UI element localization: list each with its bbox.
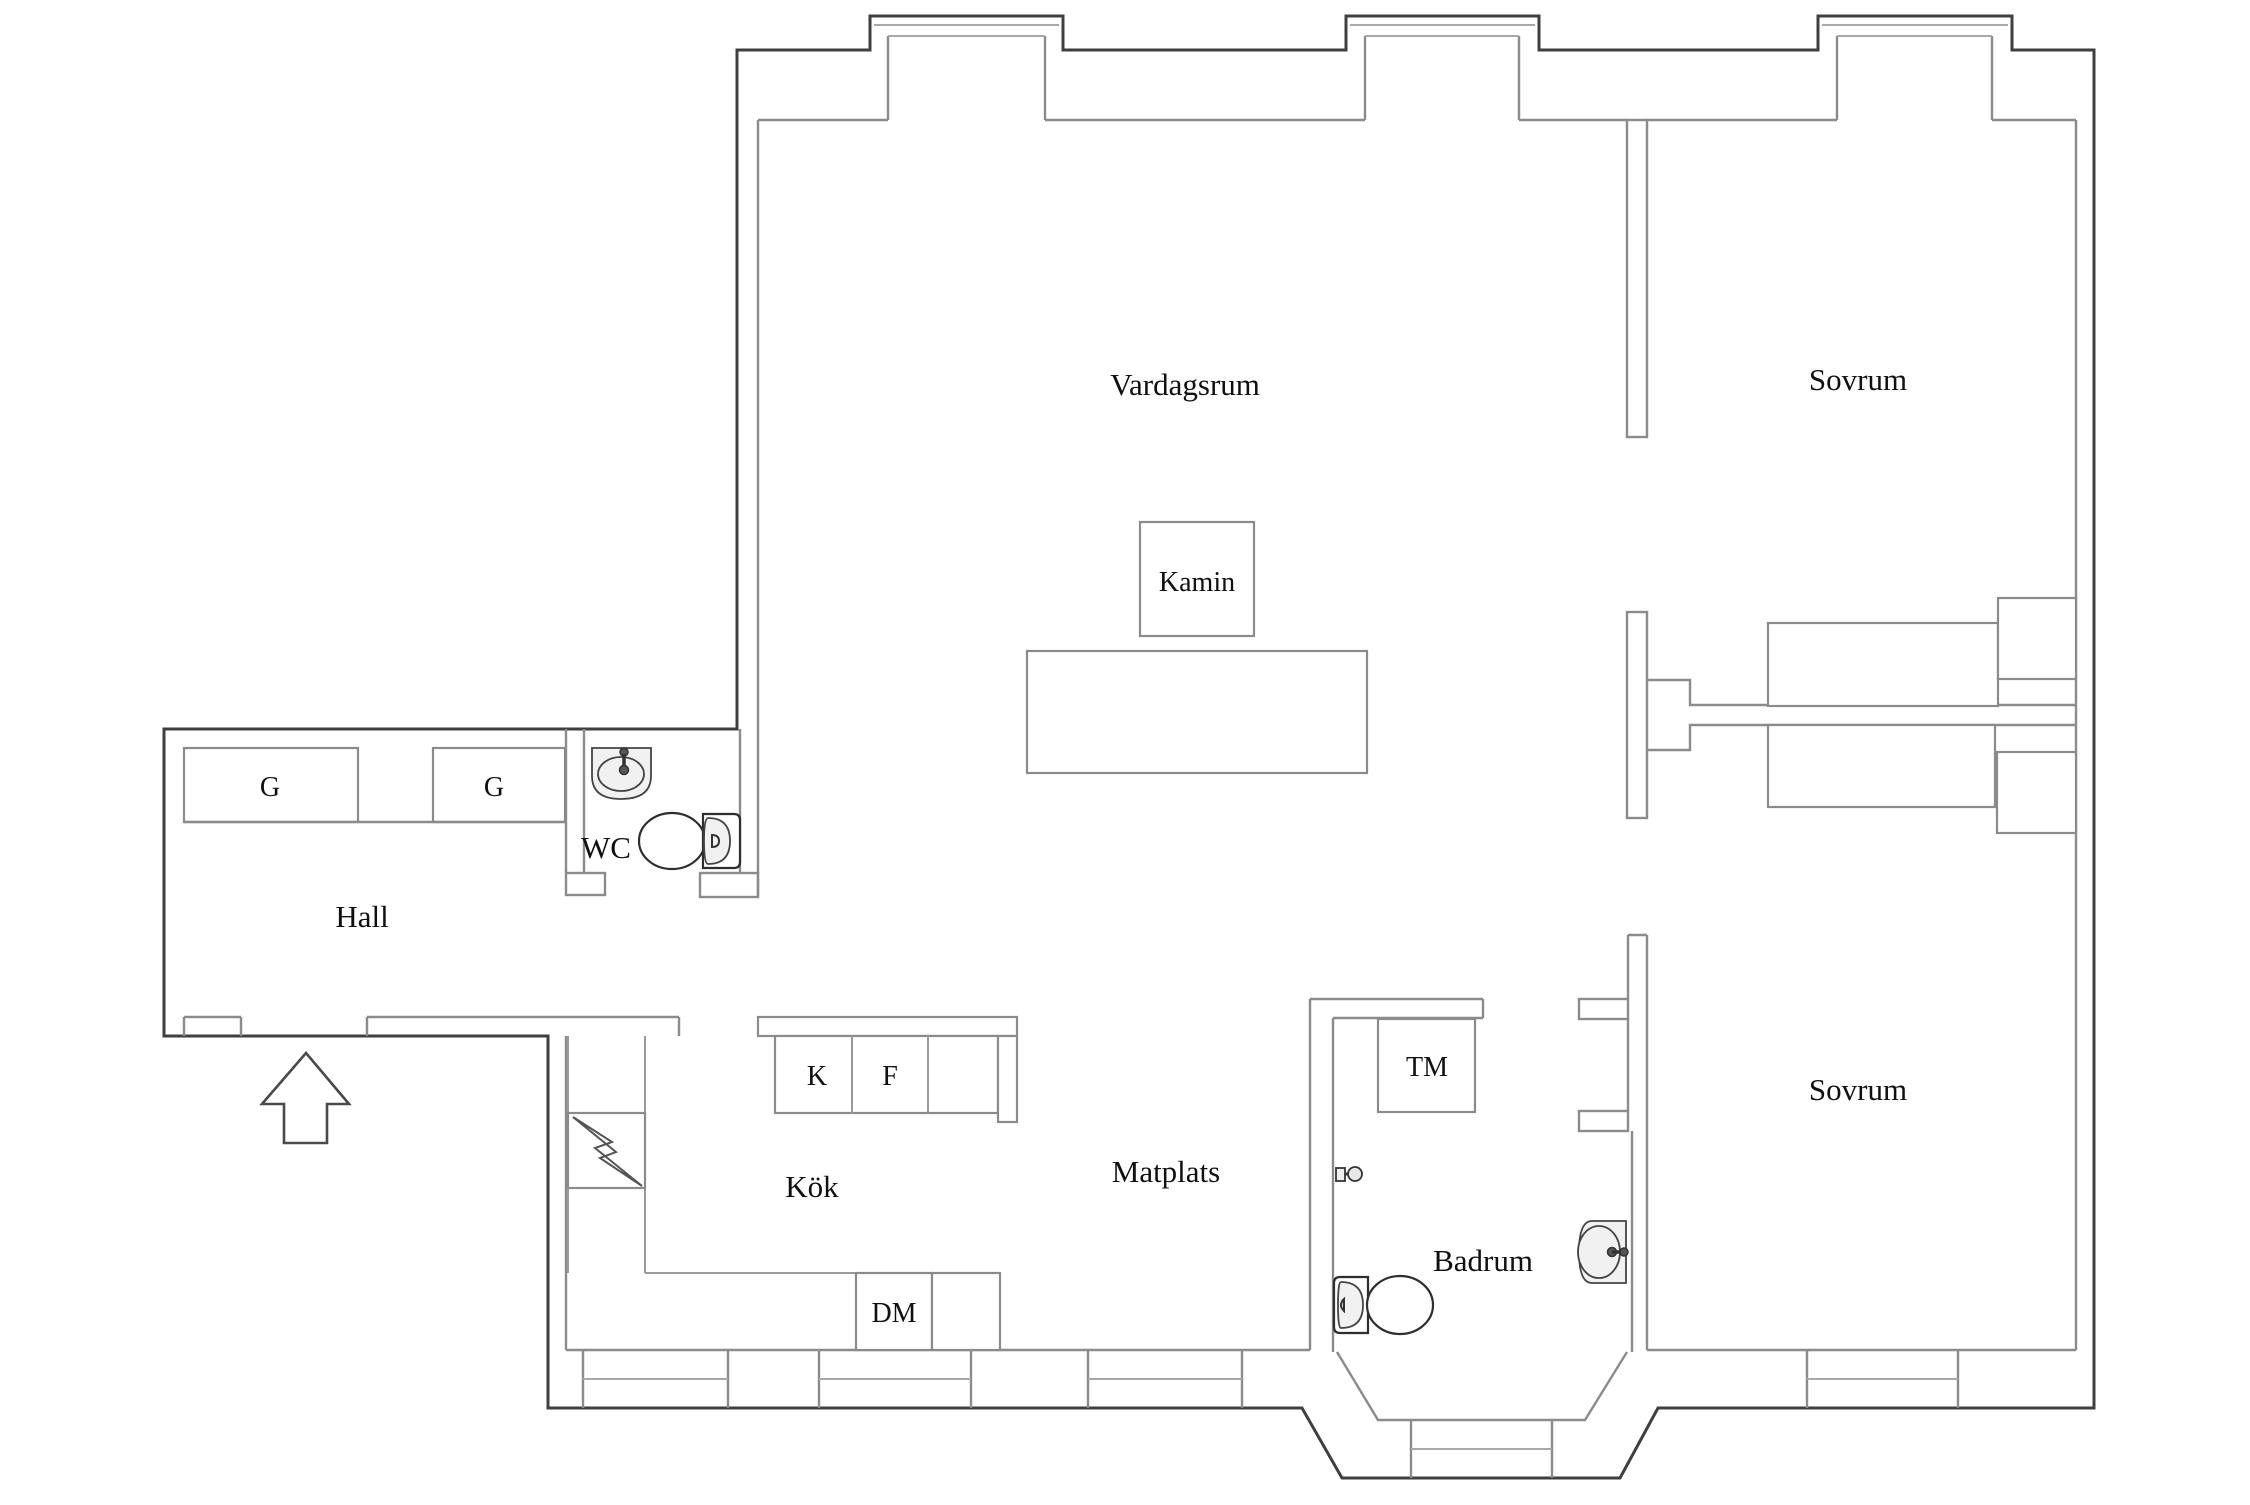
feature-label-tm: TM [1406,1052,1448,1083]
room-label-sovrum-bottom: Sovrum [1809,1072,1907,1107]
feature-label-kamin: Kamin [1159,567,1235,598]
wc-sink-icon [592,748,651,799]
feature-label-f: F [882,1061,898,1092]
feature-label-g2: G [484,772,504,803]
room-label-wc: WC [581,830,631,865]
room-label-vardagsrum: Vardagsrum [1110,367,1260,402]
bay-window-bathroom [1337,1352,1627,1478]
room-label-sovrum-top: Sovrum [1809,362,1907,397]
bed-top [1768,623,1998,706]
room-label-badrum: Badrum [1433,1243,1533,1278]
bay-window-top-middle [1350,25,1535,120]
feature-label-g1: G [260,772,280,803]
entrance-arrow-icon [262,1053,349,1143]
bay-window-top-left [874,25,1059,120]
bedroom-walls [1627,120,2076,818]
wc-toilet-icon [639,813,740,869]
sofa-table-box [1027,651,1367,773]
floor-plan: Vardagsrum Sovrum Sovrum Hall WC Kök Mat… [0,0,2250,1505]
room-label-matplats: Matplats [1112,1154,1221,1189]
nightstand-top [1998,598,2076,679]
badrum-toilet-icon [1334,1276,1433,1334]
nightstand-bottom [1997,752,2076,833]
room-label-kok: Kök [785,1169,839,1204]
bay-window-top-right [1822,25,2008,120]
shower-mixer-icon [1336,1167,1362,1181]
electrical-cabinet [568,1113,645,1188]
room-label-hall: Hall [335,899,388,934]
bottom-windows [583,1350,1958,1408]
bedroom-furniture [1768,598,2076,833]
badrum-sink-icon [1578,1221,1628,1283]
bed-bottom [1768,725,1995,807]
feature-label-k: K [807,1061,827,1092]
feature-label-dm: DM [871,1298,916,1329]
